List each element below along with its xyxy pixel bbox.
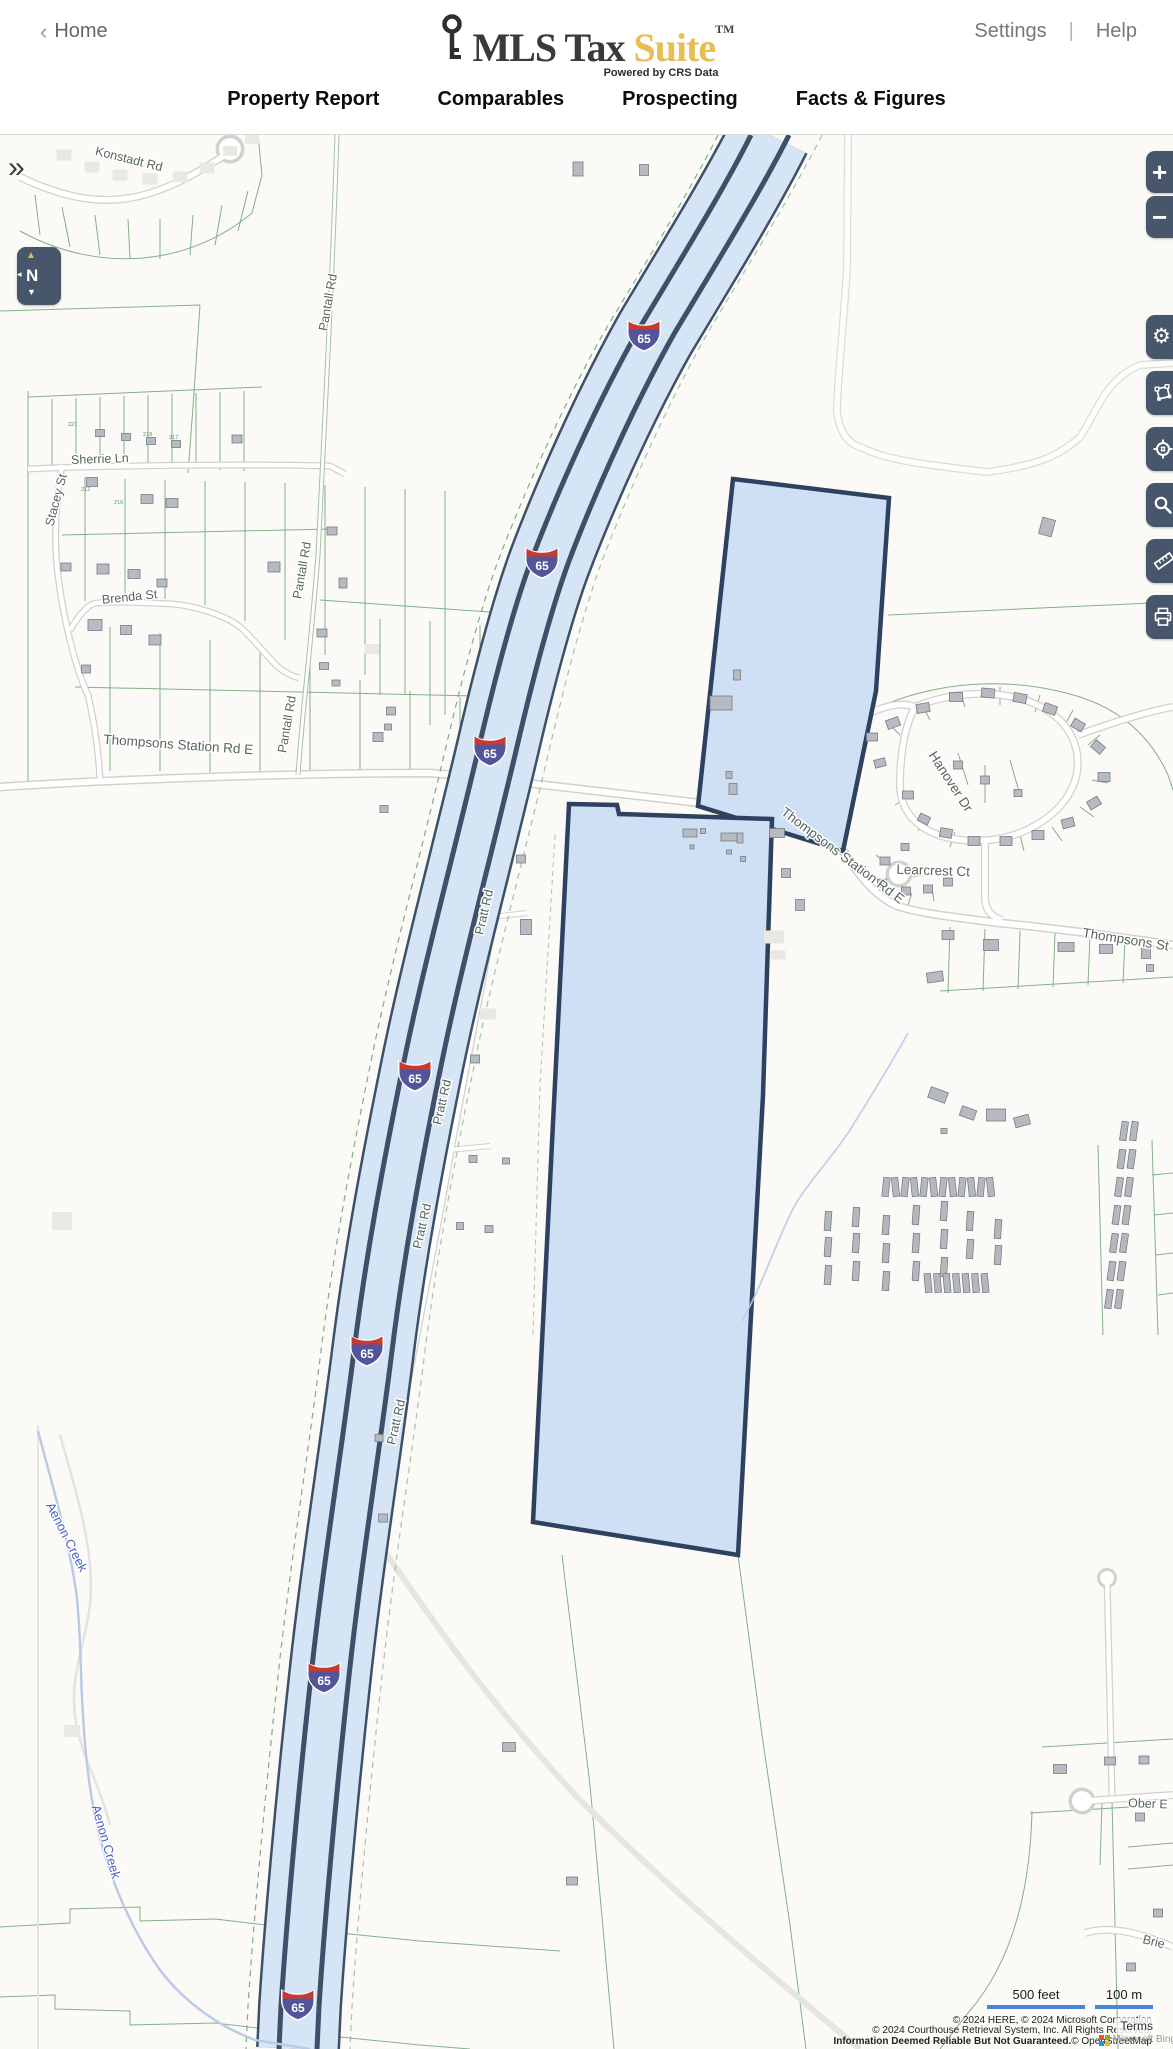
scale-metric-bar	[1095, 2005, 1153, 2009]
svg-text:65: 65	[535, 559, 549, 573]
menu-divider: |	[1069, 20, 1074, 43]
road-label-hanover: Hanover Dr	[926, 749, 976, 815]
rotate-down-icon: ▼	[27, 287, 36, 297]
measure-button[interactable]	[1146, 539, 1173, 583]
microsoft-logo-icon	[1099, 2035, 1110, 2046]
road-label-konstadt: Konstadt Rd	[94, 144, 164, 174]
ruler-icon	[1152, 549, 1173, 573]
parcel-number: 212	[81, 487, 90, 493]
water-label-aenon-1: Aenon Creek	[43, 1500, 91, 1575]
trademark: TM	[715, 22, 734, 36]
brand-accent: Suite	[633, 25, 715, 70]
map-attribution: © 2024 HERE, © 2024 Microsoft Corporatio…	[833, 2016, 1152, 2048]
selected-parcels[interactable]	[533, 479, 889, 1555]
bing-logo: Microsoft Bing	[1099, 2035, 1173, 2046]
parcel-number: 217	[169, 435, 178, 441]
plus-icon: +	[1152, 157, 1167, 188]
road-label-learcrest: Learcrest Ct	[896, 862, 970, 880]
svg-text:65: 65	[291, 2001, 305, 2015]
printer-icon	[1152, 606, 1173, 628]
main-nav: Property Report Comparables Prospecting …	[0, 88, 1173, 111]
road-label-thompsons-w: Thompsons Station Rd E	[103, 732, 254, 757]
svg-text:65: 65	[483, 747, 497, 761]
scale-metric-label: 100 m	[1095, 1987, 1153, 2002]
minus-icon: −	[1152, 202, 1167, 233]
road-label-brier: Brie	[1141, 1932, 1166, 1951]
selected-parcel-north[interactable]	[698, 479, 889, 851]
settings-link[interactable]: Settings	[974, 20, 1046, 43]
account-menu: Settings | Help	[974, 20, 1137, 43]
road-label-ober: Ober E	[1128, 1796, 1168, 1811]
map-scale: 500 feet 100 m	[987, 1987, 1153, 2009]
app-header: ‹ Home MLS Tax SuiteTM Powered by CRS Da…	[0, 0, 1173, 134]
tab-comparables[interactable]: Comparables	[437, 88, 564, 111]
svg-text:65: 65	[317, 1674, 331, 1688]
scale-metric: 100 m	[1095, 1987, 1153, 2009]
road-label-stacey: Stacey St	[42, 472, 70, 528]
help-link[interactable]: Help	[1096, 20, 1137, 43]
map-canvas[interactable]: 65656565656565 Konstadt Rd Pantall Rd Pa…	[0, 134, 1173, 2049]
road-label-pantall-1: Pantall Rd	[316, 273, 340, 332]
tab-facts-figures[interactable]: Facts & Figures	[796, 88, 946, 111]
scale-imperial-bar	[987, 2005, 1085, 2009]
terms-link[interactable]: Terms	[1116, 2018, 1157, 2034]
draw-polygon-button[interactable]	[1146, 371, 1173, 415]
svg-text:65: 65	[360, 1347, 374, 1361]
brand-wordmark: MLS Tax SuiteTM	[473, 8, 735, 69]
crosshair-icon	[1152, 438, 1173, 460]
parcel-number: 218	[143, 432, 152, 438]
map-base-layer: 65656565656565 Konstadt Rd Pantall Rd Pa…	[0, 135, 1173, 2049]
key-icon	[439, 14, 465, 64]
scale-imperial-label: 500 feet	[987, 1987, 1085, 2002]
home-button[interactable]: ‹ Home	[40, 20, 108, 43]
polygon-icon	[1152, 382, 1173, 404]
selected-parcel-south[interactable]	[533, 804, 772, 1555]
tab-prospecting[interactable]: Prospecting	[622, 88, 738, 111]
gear-icon: ⚙	[1152, 327, 1171, 347]
rotate-left-icon: ◂	[17, 269, 22, 280]
svg-text:65: 65	[408, 1072, 422, 1086]
home-label: Home	[54, 20, 107, 43]
road-label-thompsons-cut: Thompsons St	[1082, 925, 1171, 953]
zoom-out-button[interactable]: −	[1146, 196, 1173, 238]
search-button[interactable]	[1146, 483, 1173, 527]
tab-property-report[interactable]: Property Report	[227, 88, 379, 111]
scale-imperial: 500 feet	[987, 1987, 1085, 2009]
app-logo: MLS Tax SuiteTM Powered by CRS Data	[439, 8, 735, 79]
north-arrow-icon: ▲	[26, 250, 36, 261]
parcel-number: 221	[68, 422, 77, 428]
compass-button[interactable]: ▲ ◂ N ▼	[17, 247, 61, 305]
zoom-in-button[interactable]: +	[1146, 151, 1173, 193]
svg-text:65: 65	[637, 332, 651, 346]
road-label-sherrie: Sherrie Ln	[71, 451, 129, 467]
map-settings-button[interactable]: ⚙	[1146, 315, 1173, 359]
road-label-pantall-2: Pantall Rd	[290, 541, 314, 600]
water-label-aenon-2: Aenon Creek	[89, 1803, 124, 1881]
locate-button[interactable]	[1146, 427, 1173, 471]
road-label-pantall-3: Pantall Rd	[275, 695, 299, 754]
north-icon: N	[26, 266, 38, 286]
parcel-number: 216	[114, 500, 123, 506]
expand-sidebar-button[interactable]: »	[8, 153, 25, 183]
search-icon	[1152, 494, 1173, 516]
mobile-home-rows	[824, 1121, 1138, 1309]
bing-label: Microsoft Bing	[1113, 2035, 1173, 2046]
back-chevron-icon: ‹	[40, 22, 47, 42]
print-button[interactable]	[1146, 595, 1173, 639]
creeks	[38, 1033, 908, 2049]
